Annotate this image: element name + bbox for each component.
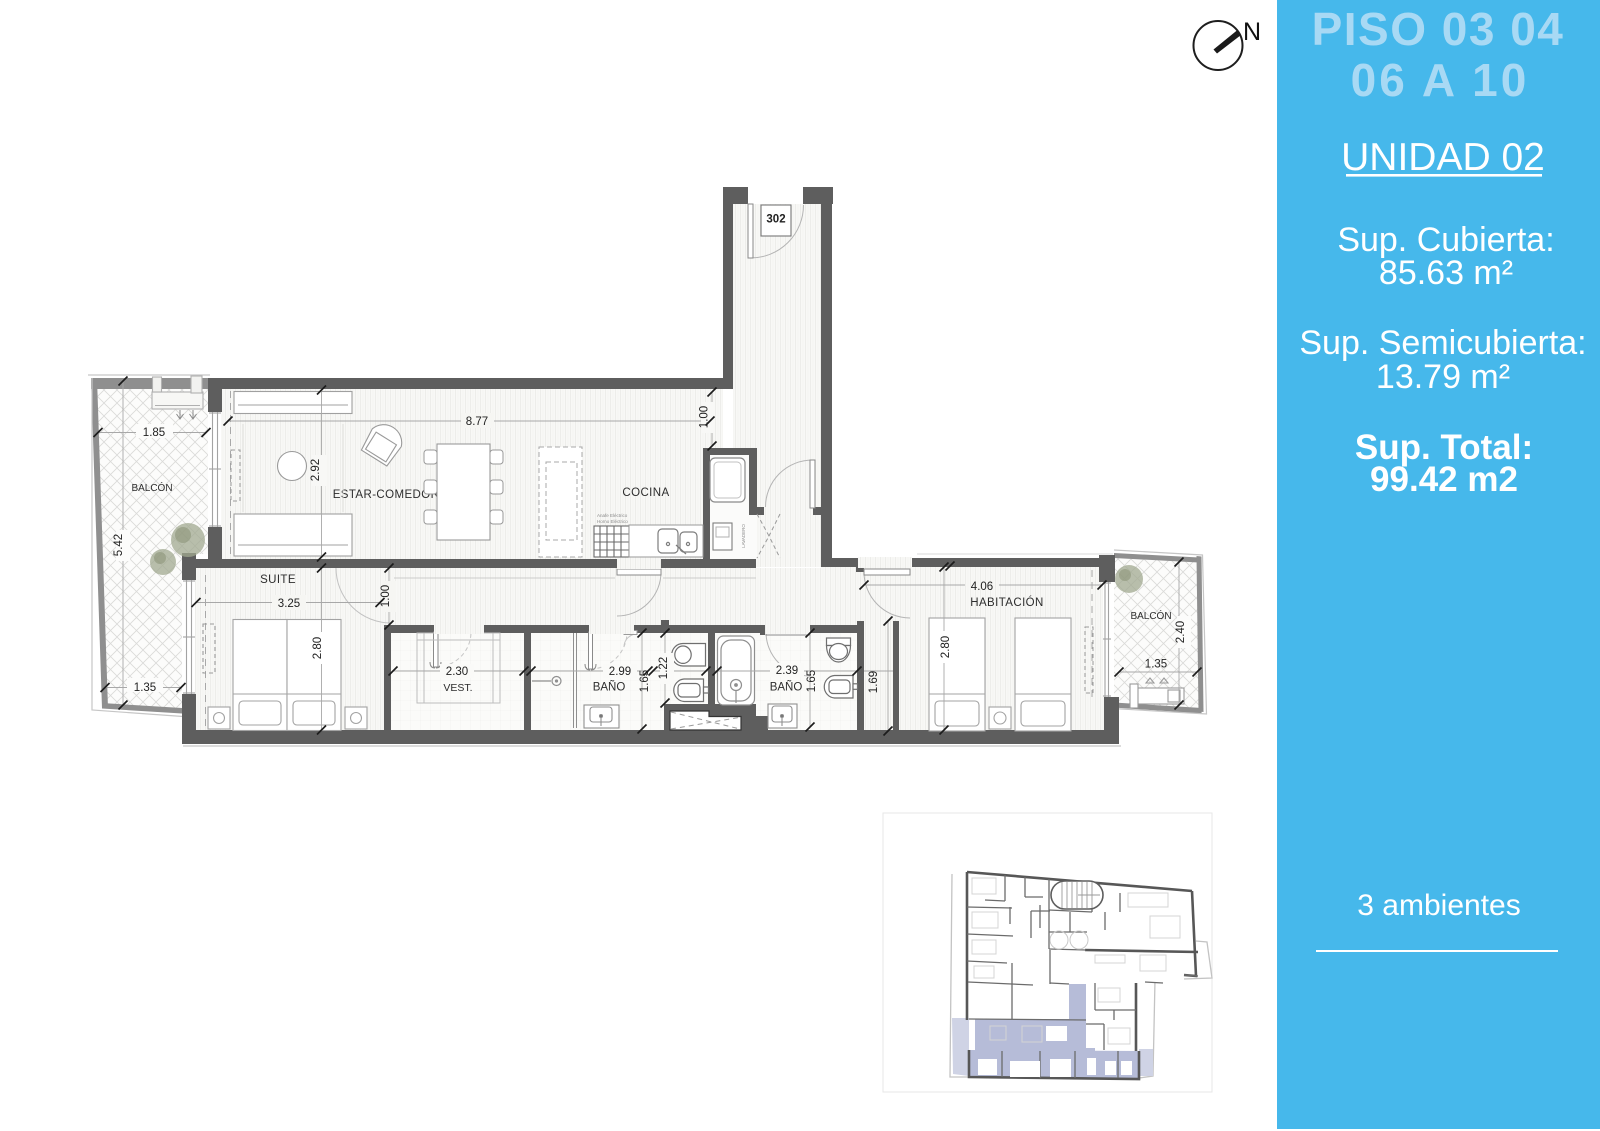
svg-text:1.65: 1.65 — [806, 670, 818, 692]
svg-text:N: N — [1243, 18, 1261, 46]
svg-text:BAÑO: BAÑO — [770, 681, 803, 694]
svg-text:85.63 m²: 85.63 m² — [1379, 254, 1513, 292]
svg-text:1.85: 1.85 — [143, 427, 165, 439]
svg-text:LAVADERO: LAVADERO — [741, 524, 746, 548]
svg-text:Sup. Semicubierta:: Sup. Semicubierta: — [1299, 324, 1586, 362]
svg-text:1.00: 1.00 — [380, 585, 392, 607]
svg-text:2.39: 2.39 — [776, 665, 798, 677]
svg-text:06 A 10: 06 A 10 — [1351, 54, 1530, 106]
svg-text:COCINA: COCINA — [622, 487, 669, 499]
svg-text:BAÑO: BAÑO — [593, 681, 626, 694]
svg-text:UNIDAD 02: UNIDAD 02 — [1341, 136, 1545, 179]
svg-text:Horno Eléctrico: Horno Eléctrico — [597, 519, 628, 524]
svg-text:99.42 m2: 99.42 m2 — [1370, 460, 1518, 499]
svg-text:BALCÓN: BALCÓN — [1130, 609, 1171, 622]
svg-text:2.99: 2.99 — [609, 666, 631, 678]
svg-text:5.42: 5.42 — [113, 534, 125, 556]
svg-text:PISO 03 04: PISO 03 04 — [1312, 3, 1565, 55]
svg-text:1.00: 1.00 — [699, 406, 711, 428]
svg-text:1.69: 1.69 — [868, 671, 880, 693]
svg-text:2.40: 2.40 — [1175, 621, 1187, 643]
svg-text:2.30: 2.30 — [446, 666, 468, 678]
svg-text:8.77: 8.77 — [466, 416, 488, 428]
svg-text:1.22: 1.22 — [658, 657, 670, 679]
svg-text:HABITACIÓN: HABITACIÓN — [970, 596, 1043, 609]
svg-text:VEST.: VEST. — [443, 682, 472, 694]
svg-text:ESTAR-COMEDOR: ESTAR-COMEDOR — [333, 489, 440, 501]
svg-text:1.35: 1.35 — [134, 682, 156, 694]
svg-text:Anafe Eléctrico: Anafe Eléctrico — [597, 513, 628, 518]
svg-text:2.80: 2.80 — [312, 637, 324, 659]
svg-text:13.79 m²: 13.79 m² — [1376, 358, 1510, 396]
svg-text:SUITE: SUITE — [260, 574, 296, 586]
svg-text:1.35: 1.35 — [1145, 659, 1167, 671]
svg-text:2.92: 2.92 — [310, 459, 322, 481]
svg-text:BALCÓN: BALCÓN — [131, 481, 172, 494]
svg-text:2.80: 2.80 — [940, 636, 952, 658]
svg-text:3 ambientes: 3 ambientes — [1357, 889, 1520, 922]
svg-text:4.06: 4.06 — [971, 581, 993, 593]
svg-text:302: 302 — [766, 214, 785, 226]
svg-text:3.25: 3.25 — [278, 598, 300, 610]
